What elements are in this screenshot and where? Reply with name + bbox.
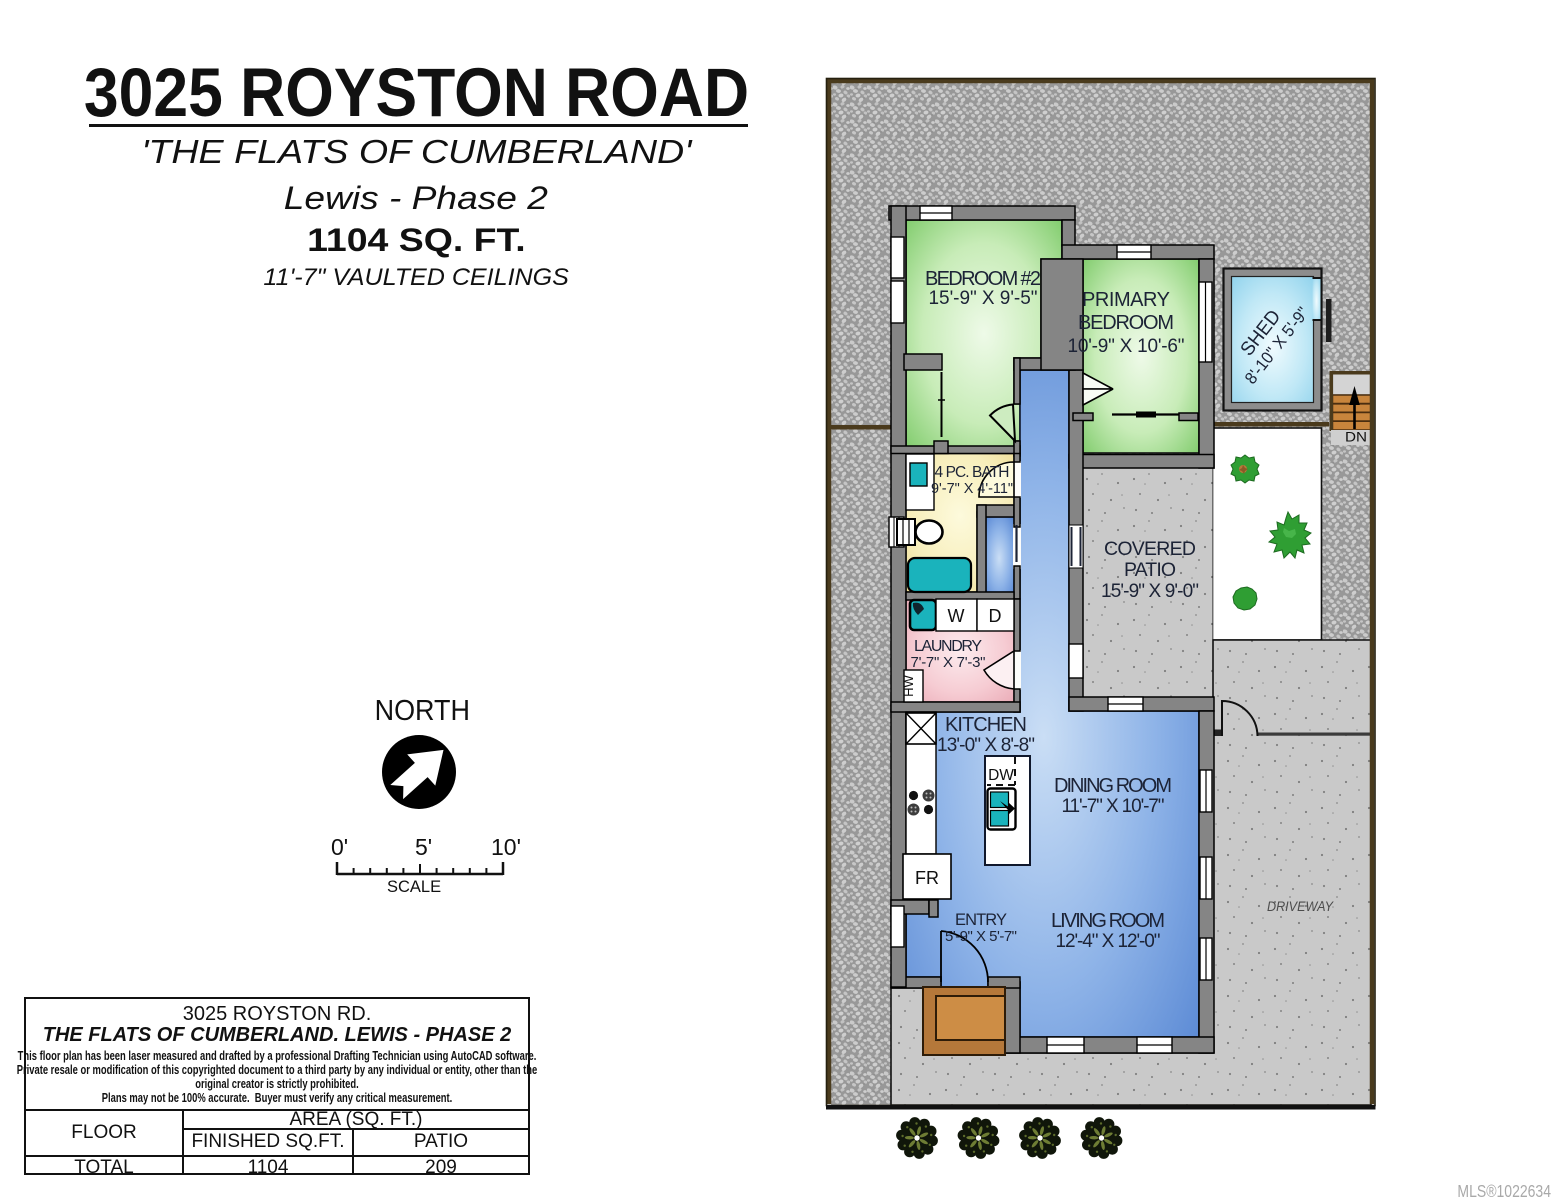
svg-text:15'-9" X 9'-0": 15'-9" X 9'-0" — [1101, 581, 1199, 602]
svg-text:FR: FR — [915, 868, 939, 888]
svg-text:BEDROOM: BEDROOM — [1078, 312, 1174, 334]
svg-text:SCALE: SCALE — [387, 878, 441, 895]
svg-text:15'-9" X 9'-5": 15'-9" X 9'-5" — [929, 288, 1038, 309]
svg-text:DRIVEWAY: DRIVEWAY — [1267, 898, 1334, 914]
svg-text:10': 10' — [491, 835, 521, 860]
svg-text:9'-7" X 4'-11": 9'-7" X 4'-11" — [931, 481, 1013, 497]
svg-text:COVERED: COVERED — [1104, 538, 1196, 560]
svg-text:D: D — [989, 606, 1002, 626]
svg-text:ENTRY: ENTRY — [955, 911, 1007, 929]
svg-text:0': 0' — [331, 835, 348, 860]
svg-text:DN: DN — [1345, 430, 1367, 445]
svg-text:4 PC. BATH: 4 PC. BATH — [935, 464, 1010, 481]
svg-text:W: W — [948, 606, 965, 626]
svg-text:10'-9" X 10'-6": 10'-9" X 10'-6" — [1068, 336, 1185, 357]
svg-text:5'-9" X 5'-7": 5'-9" X 5'-7" — [945, 928, 1017, 945]
svg-text:11'-7" X 10'-7": 11'-7" X 10'-7" — [1062, 796, 1165, 817]
svg-text:PATIO: PATIO — [1124, 559, 1176, 581]
svg-text:13'-0" X 8'-8": 13'-0" X 8'-8" — [937, 735, 1035, 756]
svg-text:LAUNDRY: LAUNDRY — [914, 638, 982, 655]
svg-text:DW: DW — [988, 767, 1014, 784]
svg-text:DINING ROOM: DINING ROOM — [1054, 775, 1172, 797]
svg-text:LIVING ROOM: LIVING ROOM — [1051, 910, 1165, 932]
svg-text:12'-4" X 12'-0": 12'-4" X 12'-0" — [1056, 931, 1161, 952]
svg-text:HW: HW — [901, 674, 916, 696]
svg-text:7'-7" X 7'-3": 7'-7" X 7'-3" — [911, 654, 986, 671]
svg-text:PRIMARY: PRIMARY — [1082, 289, 1170, 311]
svg-text:KITCHEN: KITCHEN — [945, 714, 1027, 736]
svg-text:BEDROOM #2: BEDROOM #2 — [925, 268, 1041, 290]
svg-text:5': 5' — [415, 835, 432, 860]
